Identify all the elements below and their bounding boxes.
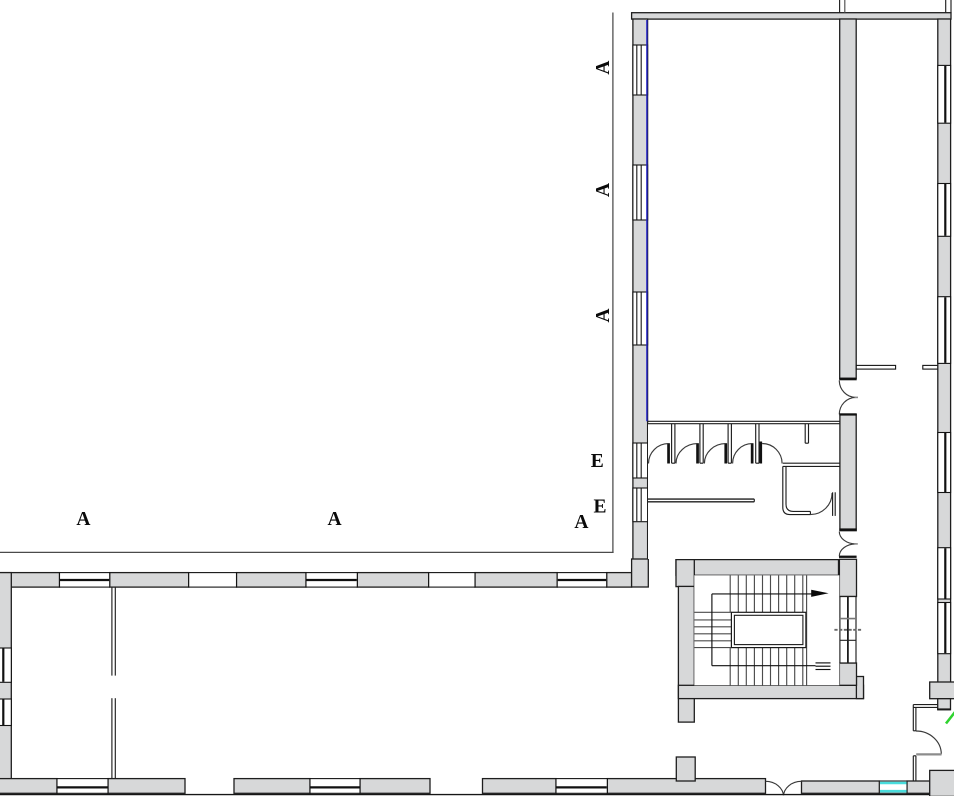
svg-text:A: A: [593, 308, 614, 322]
svg-text:A: A: [76, 509, 90, 530]
svg-text:A: A: [593, 183, 614, 197]
svg-text:E: E: [591, 451, 604, 472]
svg-text:A: A: [327, 509, 341, 530]
svg-text:A: A: [574, 512, 588, 533]
svg-text:A: A: [593, 61, 614, 75]
svg-text:E: E: [593, 496, 606, 517]
